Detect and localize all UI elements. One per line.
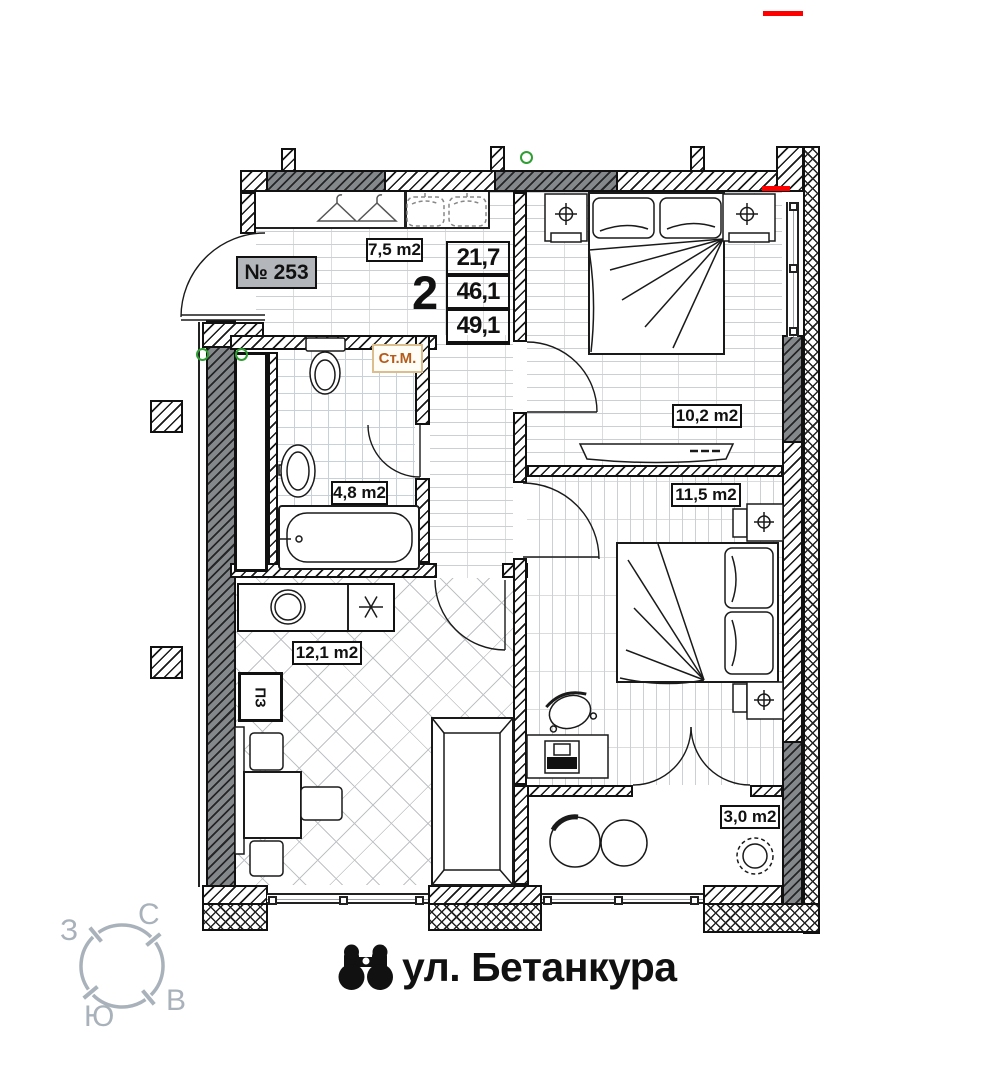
- chair: [301, 787, 342, 820]
- toilet: [306, 338, 345, 394]
- kitchen-sink: [271, 590, 305, 624]
- office-chair: [541, 687, 597, 735]
- room-label-balcony: 3,0 m2: [720, 805, 780, 829]
- apartment-number-badge: № 253: [236, 256, 317, 289]
- french-doors-balcony: [633, 727, 750, 785]
- door-bedroom1: [527, 342, 597, 412]
- chair: [250, 841, 283, 876]
- balcony-table: [601, 820, 647, 866]
- area-stats-table: 21,7 46,1 49,1: [446, 241, 510, 345]
- room-label-bathroom: 4,8 m2: [331, 481, 388, 505]
- bathtub: [279, 506, 419, 569]
- area-apartment: 46,1: [448, 277, 508, 311]
- bed-bedroom1: [589, 193, 724, 354]
- nightstand-lamp: [723, 194, 775, 242]
- laptop: [545, 741, 579, 773]
- tv-console: [235, 727, 244, 854]
- chair: [250, 733, 283, 770]
- compass-east: В: [166, 984, 186, 1018]
- stove-burner-icon: [359, 597, 383, 618]
- area-living: 21,7: [448, 243, 508, 277]
- sliding-wardrobe: [580, 444, 733, 463]
- bed-bedroom2: [617, 543, 778, 684]
- compass-south: Ю: [84, 1000, 114, 1034]
- nightstand-lamp: [733, 504, 783, 541]
- nightstand-lamp: [545, 194, 587, 242]
- street-name: ул. Бетанкура: [402, 944, 677, 991]
- room-label-bedroom2: 11,5 m2: [671, 483, 741, 507]
- jackets-icon: [407, 193, 486, 226]
- plant-icon: [737, 838, 773, 874]
- floor-plan-page: ПЗ: [0, 0, 1001, 1067]
- compass-north: С: [138, 898, 160, 932]
- washbasin: [279, 445, 315, 497]
- door-bathroom: [368, 425, 420, 477]
- door-bedroom2: [523, 483, 599, 559]
- nightstand-lamp: [733, 682, 783, 719]
- balcony-chair: [550, 817, 600, 867]
- rooms-count: 2: [412, 268, 438, 318]
- compass-west: З: [60, 914, 78, 948]
- area-total: 49,1: [448, 311, 508, 345]
- coat-hangers-icon: [318, 195, 396, 221]
- room-label-bedroom1: 10,2 m2: [672, 404, 742, 428]
- sofa: [432, 718, 513, 885]
- room-label-hallway: 7,5 m2: [366, 238, 423, 262]
- door-kitchen: [435, 580, 505, 650]
- washing-machine-label: Ст.М.: [372, 344, 423, 373]
- compass-rose: [81, 925, 163, 1007]
- binoculars-icon: [339, 945, 394, 991]
- room-label-kitchen: 12,1 m2: [292, 641, 362, 665]
- dining-table: [244, 772, 301, 838]
